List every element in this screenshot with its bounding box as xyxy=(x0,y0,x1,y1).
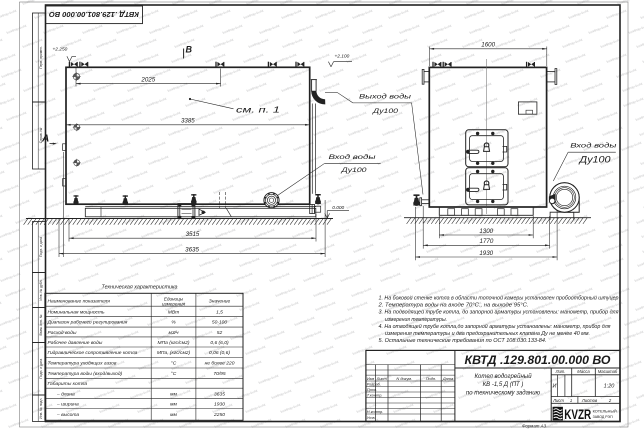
svg-text:КВТД .129.801.00.000 ВО: КВТД .129.801.00.000 ВО xyxy=(49,10,139,19)
svg-text:Котел водогрейный: Котел водогрейный xyxy=(474,373,532,380)
svg-text:мм: мм xyxy=(170,402,177,407)
svg-text:4. На отводящей трубе котла,д: 4. На отводящей трубе котла,до запорной … xyxy=(379,323,611,330)
svg-text:Единицы: Единицы xyxy=(164,296,184,301)
svg-text:КВ -1,5 Д (ПТ ): КВ -1,5 Д (ПТ ) xyxy=(483,382,524,388)
svg-text:Подп. и дата: Подп. и дата xyxy=(39,237,43,257)
svg-text:Ду100: Ду100 xyxy=(372,108,399,115)
svg-text:Утв.: Утв. xyxy=(367,415,376,420)
svg-text:– высота: – высота xyxy=(56,413,79,418)
svg-text:Н.контр.: Н.контр. xyxy=(367,409,383,414)
svg-text:Подп.: Подп. xyxy=(426,376,436,381)
svg-text:Инв. № дубл.: Инв. № дубл. xyxy=(39,279,43,300)
svg-text:2. Температура воды на входе: 2. Температура воды на входе 70°С., на в… xyxy=(377,302,528,308)
svg-text:+2.250: +2.250 xyxy=(53,47,68,53)
svg-text:50-100: 50-100 xyxy=(212,320,228,326)
svg-text:1:20: 1:20 xyxy=(604,384,616,390)
svg-text:3385: 3385 xyxy=(181,118,195,125)
svg-text:1,5: 1,5 xyxy=(216,309,223,315)
svg-text:Гидравлическое сопротивление к: Гидравлическое сопротивление котла xyxy=(48,350,138,356)
svg-text:ЗАВОД РЭП: ЗАВОД РЭП xyxy=(593,414,613,419)
svg-text:Инв. № подл.: Инв. № подл. xyxy=(39,398,43,419)
svg-text:1600: 1600 xyxy=(481,42,495,49)
svg-text:Номинальная мощность: Номинальная мощность xyxy=(48,309,106,315)
svg-text:3. На подводящей трубе котла,: 3. На подводящей трубе котла, до запорно… xyxy=(379,309,619,316)
svg-text:Значение: Значение xyxy=(209,299,231,305)
svg-text:м3/ч: м3/ч xyxy=(169,330,179,336)
svg-text:измерения: измерения xyxy=(162,302,186,307)
svg-text:Температура уходящих газов: Температура уходящих газов xyxy=(48,361,117,367)
svg-text:Температура воды (вход/выход): Температура воды (вход/выход) xyxy=(48,371,123,377)
svg-text:Взам. инв. №: Взам. инв. № xyxy=(39,314,43,335)
svg-text:3635: 3635 xyxy=(214,391,225,397)
svg-text:МПа, (кгс/см2): МПа, (кгс/см2) xyxy=(157,350,191,356)
svg-text:3515: 3515 xyxy=(186,231,200,238)
svg-text:И: И xyxy=(553,384,557,390)
svg-text:КОТЕЛЬНЫЙ: КОТЕЛЬНЫЙ xyxy=(593,408,617,413)
svg-text:70/95: 70/95 xyxy=(213,371,226,377)
svg-text:Листов: Листов xyxy=(581,398,598,403)
svg-text:0.000: 0.000 xyxy=(332,205,344,211)
svg-text:МВт: МВт xyxy=(168,309,179,315)
svg-text:3635: 3635 xyxy=(185,246,199,253)
svg-text:52: 52 xyxy=(217,330,223,336)
svg-text:%: % xyxy=(171,320,176,326)
svg-text:1300: 1300 xyxy=(479,228,493,235)
svg-text:Лист: Лист xyxy=(552,398,564,403)
svg-text:N докум.: N докум. xyxy=(396,376,412,381)
svg-text:по техническому заданию: по техническому заданию xyxy=(466,390,541,396)
svg-text:+2.100: +2.100 xyxy=(335,54,350,60)
svg-text:2025: 2025 xyxy=(140,76,155,83)
svg-text:0,6 (6,0): 0,6 (6,0) xyxy=(210,340,229,346)
svg-text:В: В xyxy=(186,45,193,55)
svg-text:Ду100: Ду100 xyxy=(578,154,611,164)
svg-text:KVZR: KVZR xyxy=(564,407,591,422)
svg-text:Масса: Масса xyxy=(577,369,590,374)
svg-text:– длина: – длина xyxy=(56,391,75,397)
svg-text:Масштаб: Масштаб xyxy=(598,369,618,374)
svg-text:Пров.: Пров. xyxy=(367,387,377,392)
svg-text:2250: 2250 xyxy=(213,412,225,418)
svg-text:Рабочее давление воды: Рабочее давление воды xyxy=(48,340,103,346)
svg-text:Подп. и дата: Подп. и дата xyxy=(39,359,43,379)
svg-text:МПа (кгс/см2): МПа (кгс/см2) xyxy=(158,340,190,346)
svg-text:°С: °С xyxy=(171,361,177,367)
svg-text:°С: °С xyxy=(171,371,177,377)
svg-text:измерения температуры и два пр: измерения температуры и два предохраните… xyxy=(385,331,590,337)
svg-text:1. На боковой стенке котла в: 1. На боковой стенке котла в области топ… xyxy=(379,294,619,301)
svg-text:Изм: Изм xyxy=(367,376,375,381)
svg-text:5. Остальные технические треб: 5. Остальные технические требования по О… xyxy=(379,338,547,344)
svg-text:1930: 1930 xyxy=(214,401,225,407)
svg-text:мм: мм xyxy=(170,413,177,418)
svg-text:Вход воды: Вход воды xyxy=(329,153,376,161)
svg-text:Техническая характеристика: Техническая характеристика xyxy=(102,285,178,291)
svg-text:измерения температуры.: измерения температуры. xyxy=(385,317,447,323)
svg-text:Вход воды: Вход воды xyxy=(570,141,616,149)
svg-text:Разраб.: Разраб. xyxy=(367,381,381,386)
svg-text:– ширина: – ширина xyxy=(56,402,79,407)
svg-text:Расход воды: Расход воды xyxy=(48,330,77,336)
svg-text:1: 1 xyxy=(570,398,572,403)
svg-text:Габариты котла: Габариты котла xyxy=(48,381,88,387)
svg-text:Ду100: Ду100 xyxy=(340,167,367,174)
svg-text:1930: 1930 xyxy=(479,250,493,257)
svg-text:КВТД .129.801.00.000 ВО: КВТД .129.801.00.000 ВО xyxy=(465,354,611,367)
svg-text:Т.контр.: Т.контр. xyxy=(367,392,383,397)
svg-text:Формат А3: Формат А3 xyxy=(522,423,547,428)
svg-text:1770: 1770 xyxy=(480,238,494,245)
svg-text:Лист: Лист xyxy=(376,376,388,381)
svg-text:Выход воды: Выход воды xyxy=(359,93,411,101)
svg-text:см. п. 1: см. п. 1 xyxy=(236,106,280,115)
svg-text:Наименование показателя: Наименование показателя xyxy=(48,299,111,305)
svg-text:Диапазон рабочего регулировани: Диапазон рабочего регулирования xyxy=(47,320,128,326)
svg-text:не более 220: не более 220 xyxy=(205,361,235,367)
svg-text:Лит.: Лит. xyxy=(555,369,566,374)
svg-text:мм: мм xyxy=(170,392,177,397)
svg-text:Дата: Дата xyxy=(442,376,454,381)
svg-text:Перв. примен.: Перв. примен. xyxy=(39,46,43,69)
svg-text:0,06 (0,6): 0,06 (0,6) xyxy=(209,350,230,356)
svg-text:А: А xyxy=(41,134,49,145)
